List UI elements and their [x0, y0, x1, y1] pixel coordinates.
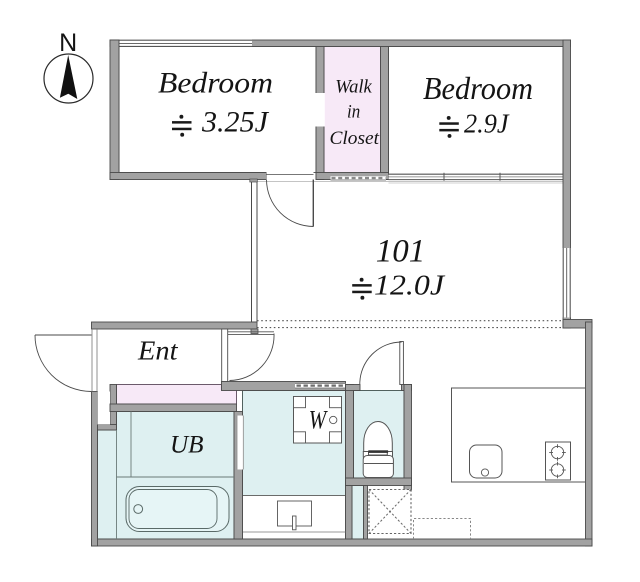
svg-text:Walk: Walk: [335, 78, 372, 98]
svg-text:UB: UB: [170, 432, 204, 459]
svg-text:Ent: Ent: [137, 335, 179, 366]
svg-text:Bedroom: Bedroom: [158, 67, 273, 100]
svg-text:2.9J: 2.9J: [464, 109, 510, 139]
svg-text:Bedroom: Bedroom: [423, 70, 533, 106]
svg-text:Closet: Closet: [330, 128, 380, 149]
svg-text:101: 101: [376, 234, 426, 270]
svg-text:in: in: [347, 103, 360, 123]
svg-text:12.0J: 12.0J: [374, 270, 445, 302]
svg-text:W: W: [309, 406, 328, 435]
svg-text:N: N: [59, 29, 77, 57]
svg-text:3.25J: 3.25J: [201, 106, 270, 139]
